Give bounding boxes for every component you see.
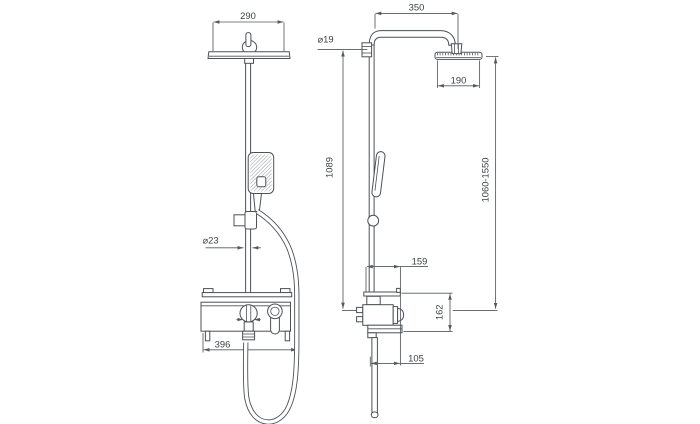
- dim-label-dia23: ⌀23: [203, 235, 219, 246]
- hand-shower-handle: [254, 194, 262, 212]
- drawing-canvas: 290 ⌀23: [0, 0, 700, 424]
- front-shower-holder: [234, 212, 257, 230]
- inlet-stub-left: [205, 331, 209, 341]
- side-view: 350 ⌀19 190 1089 1060-1550: [318, 2, 499, 418]
- dim-spout-depth-105: 105: [370, 352, 424, 366]
- side-shower-head: [435, 44, 482, 60]
- dim-label-dia19: ⌀19: [318, 34, 334, 45]
- head-connector-nut: [451, 44, 462, 54]
- dim-label-159: 159: [412, 255, 428, 266]
- dim-label-396: 396: [215, 338, 231, 349]
- shower-system-dimension-drawing: 290 ⌀23: [0, 0, 700, 424]
- dim-label-350: 350: [409, 2, 425, 13]
- dim-height-range-1060-1550: 1060-1550: [453, 57, 499, 311]
- pipe-mount: [367, 296, 380, 304]
- side-mixer-body: [363, 305, 393, 326]
- dim-riser-diameter-23: ⌀23: [203, 235, 262, 248]
- front-view: 290 ⌀23: [201, 10, 298, 422]
- side-shower-arm: [369, 31, 455, 46]
- dim-label-290: 290: [240, 10, 256, 21]
- dim-label-105: 105: [408, 352, 424, 363]
- head-collar: [245, 59, 254, 64]
- side-holder-knob: [368, 215, 379, 226]
- dim-pipe-diameter-19: ⌀19: [318, 34, 368, 50]
- dim-label-190: 190: [451, 74, 467, 85]
- dim-head-width-190: 190: [437, 60, 479, 88]
- side-riser-pipe: [369, 44, 374, 297]
- side-mixer: [357, 288, 404, 337]
- wall-nub-bottom: [357, 317, 363, 322]
- swivel-pin: [246, 33, 251, 47]
- dim-label-1060-1550: 1060-1550: [480, 158, 491, 203]
- dim-label-162: 162: [434, 304, 445, 320]
- front-mixer-body: [201, 302, 291, 341]
- dim-riser-height-1089: 1089: [324, 51, 368, 311]
- dim-mixer-height-162: 162: [402, 293, 453, 331]
- inlet-stub-right: [285, 331, 289, 341]
- dim-arm-length-350: 350: [375, 2, 458, 50]
- hand-shower-button: [257, 177, 266, 187]
- side-shelf: [364, 292, 401, 296]
- wall-nub-top: [357, 307, 363, 312]
- dim-label-1089: 1089: [324, 157, 335, 178]
- front-hand-shower: [248, 153, 274, 212]
- side-shower-hose: [371, 338, 378, 418]
- spout-outlet: [243, 331, 255, 340]
- front-shower-head: [208, 33, 290, 64]
